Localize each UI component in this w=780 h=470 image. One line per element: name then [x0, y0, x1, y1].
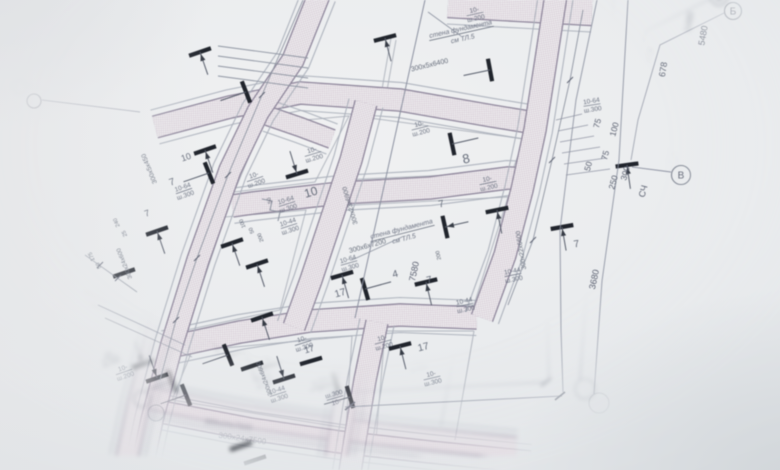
svg-text:В: В [664, 157, 671, 168]
svg-text:300х5х6400: 300х5х6400 [396, 44, 435, 60]
svg-text:200: 200 [421, 236, 429, 246]
svg-text:240: 240 [99, 203, 108, 214]
svg-text:7: 7 [129, 194, 137, 205]
svg-text:100: 100 [593, 107, 606, 124]
svg-text:ш.300: ш.300 [569, 91, 588, 101]
svg-text:СЧ: СЧ [623, 170, 636, 184]
svg-text:678: 678 [643, 47, 655, 64]
svg-text:10: 10 [166, 137, 179, 150]
svg-text:17: 17 [403, 327, 417, 340]
svg-text:4: 4 [377, 254, 386, 266]
svg-text:10-: 10- [412, 356, 423, 365]
svg-text:5480: 5480 [682, 11, 695, 32]
svg-text:8: 8 [447, 137, 457, 153]
svg-text:250: 250 [592, 160, 605, 177]
svg-text:3680: 3680 [573, 255, 587, 277]
svg-text:ш.300: ш.300 [310, 375, 329, 387]
svg-text:75: 75 [585, 135, 597, 147]
svg-text:7: 7 [559, 225, 567, 237]
svg-text:300х24х6600: 300х24х6600 [242, 346, 260, 382]
svg-text:50: 50 [234, 212, 242, 220]
svg-text:7580: 7580 [393, 247, 407, 269]
svg-text:Б: Б [716, 0, 723, 4]
svg-text:10-: 10- [317, 384, 328, 393]
svg-text:75: 75 [577, 103, 589, 115]
svg-text:10-: 10- [400, 106, 411, 115]
svg-text:25: 25 [107, 215, 115, 223]
svg-text:300х5х450: 300х5х450 [126, 138, 145, 170]
svg-text:100: 100 [225, 204, 234, 215]
svg-text:50: 50 [568, 146, 580, 158]
svg-text:200: 200 [243, 218, 252, 229]
